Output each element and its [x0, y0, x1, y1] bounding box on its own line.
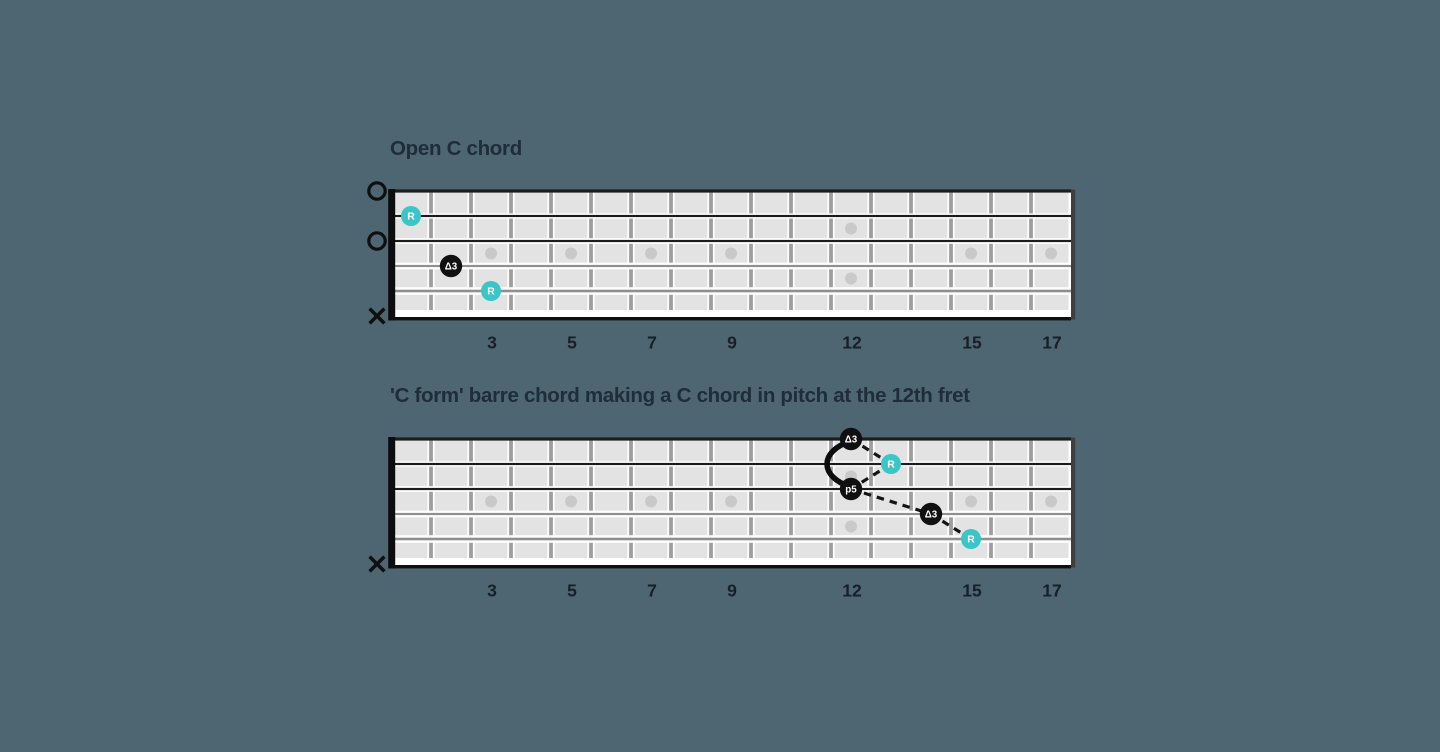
fret-wire	[469, 191, 473, 316]
note-marker-label: R	[407, 211, 415, 223]
string-6	[391, 310, 1071, 317]
note-marker-label: R	[487, 286, 495, 298]
fret-wire	[549, 191, 553, 316]
fret-number-label: 9	[727, 581, 737, 601]
fret-wire	[789, 439, 793, 564]
page: { "canvas": { "background": "#4d6671" },…	[0, 0, 1440, 752]
board-bottom-edge	[391, 317, 1071, 320]
inlay-dot	[485, 496, 497, 508]
string-2	[391, 215, 1071, 217]
fret-number-label: 17	[1042, 581, 1061, 601]
inlay-dot	[965, 496, 977, 508]
fret-number-label: 3	[487, 333, 497, 353]
fret-wire	[429, 439, 433, 564]
inlay-dot	[1045, 496, 1057, 508]
inlay-dot	[725, 496, 737, 508]
fret-number-label: 7	[647, 581, 657, 601]
inlay-dot	[565, 248, 577, 260]
fret-wire	[909, 439, 913, 564]
fret-wire	[749, 439, 753, 564]
string-1	[391, 437, 1071, 440]
inlay-dot	[965, 248, 977, 260]
inlay-dot	[645, 496, 657, 508]
note-marker-label: Δ3	[445, 262, 458, 273]
fret-wire	[869, 439, 873, 564]
board-bottom-edge	[391, 565, 1071, 568]
nut	[388, 189, 395, 321]
fret-wire	[709, 191, 713, 316]
string-1	[391, 189, 1071, 192]
fret-wire	[1029, 439, 1033, 564]
fret-number-label: 15	[962, 333, 982, 353]
fret-number-label: 3	[487, 581, 497, 601]
board-right-halo	[1069, 439, 1072, 564]
fret-number-label: 7	[647, 333, 657, 353]
fret-wire	[789, 191, 793, 316]
fret-number-label: 9	[727, 333, 737, 353]
fret-wire	[909, 191, 913, 316]
string-3	[391, 240, 1071, 242]
diagram-title-open-c: Open C chord	[390, 138, 522, 160]
fret-wire	[829, 191, 833, 316]
fret-wire	[669, 439, 673, 564]
fret-number-label: 17	[1042, 333, 1061, 353]
inlay-dot	[725, 248, 737, 260]
fret-wire	[709, 439, 713, 564]
note-marker-label: R	[887, 459, 895, 471]
fret-number-label: 5	[567, 581, 577, 601]
note-marker-label: Δ3	[845, 435, 858, 446]
inlay-dot	[845, 521, 857, 533]
fret-wire	[429, 191, 433, 316]
fret-wire	[949, 439, 953, 564]
note-marker-label: R	[967, 534, 975, 546]
fret-number-label: 5	[567, 333, 577, 353]
string-3	[391, 488, 1071, 490]
inlay-dot	[565, 496, 577, 508]
fret-wire	[749, 191, 753, 316]
nut	[388, 437, 395, 569]
note-marker-label: p5	[845, 485, 857, 496]
open-string-icon	[369, 183, 385, 199]
string-4	[391, 513, 1071, 515]
fretboard-c-form-barre: 3579121517Δ3Rp5Δ3R	[350, 429, 1090, 614]
string-4	[391, 265, 1071, 267]
note-marker-label: Δ3	[925, 510, 938, 521]
inlay-dot	[1045, 248, 1057, 260]
fret-wire	[989, 191, 993, 316]
fret-wire	[1029, 191, 1033, 316]
open-string-icon	[369, 233, 385, 249]
fret-wire	[869, 191, 873, 316]
fret-wire	[949, 191, 953, 316]
fret-wire	[549, 439, 553, 564]
inlay-dot	[845, 223, 857, 235]
board-right-edge	[1071, 190, 1075, 320]
fret-wire	[509, 191, 513, 316]
fret-wire	[589, 191, 593, 316]
fret-wire	[989, 439, 993, 564]
string-6	[391, 558, 1071, 565]
fret-number-label: 12	[842, 581, 862, 601]
fret-number-label: 12	[842, 333, 862, 353]
fret-wire	[669, 191, 673, 316]
inlay-dot	[645, 248, 657, 260]
board-right-halo	[1069, 191, 1072, 316]
chord-diagrams-canvas: Open C chord 3579121517RΔ3R 'C form' bar…	[0, 0, 1440, 752]
inlay-dot	[485, 248, 497, 260]
fret-wire	[589, 439, 593, 564]
board-right-edge	[1071, 438, 1075, 568]
fretboard-open-c: 3579121517RΔ3R	[350, 181, 1090, 366]
fret-wire	[629, 191, 633, 316]
fret-wire	[629, 439, 633, 564]
fret-wire	[469, 439, 473, 564]
diagram-title-c-form-barre: 'C form' barre chord making a C chord in…	[390, 385, 970, 407]
string-2	[391, 463, 1071, 465]
inlay-dot	[845, 273, 857, 285]
fret-number-label: 15	[962, 581, 982, 601]
fret-wire	[509, 439, 513, 564]
